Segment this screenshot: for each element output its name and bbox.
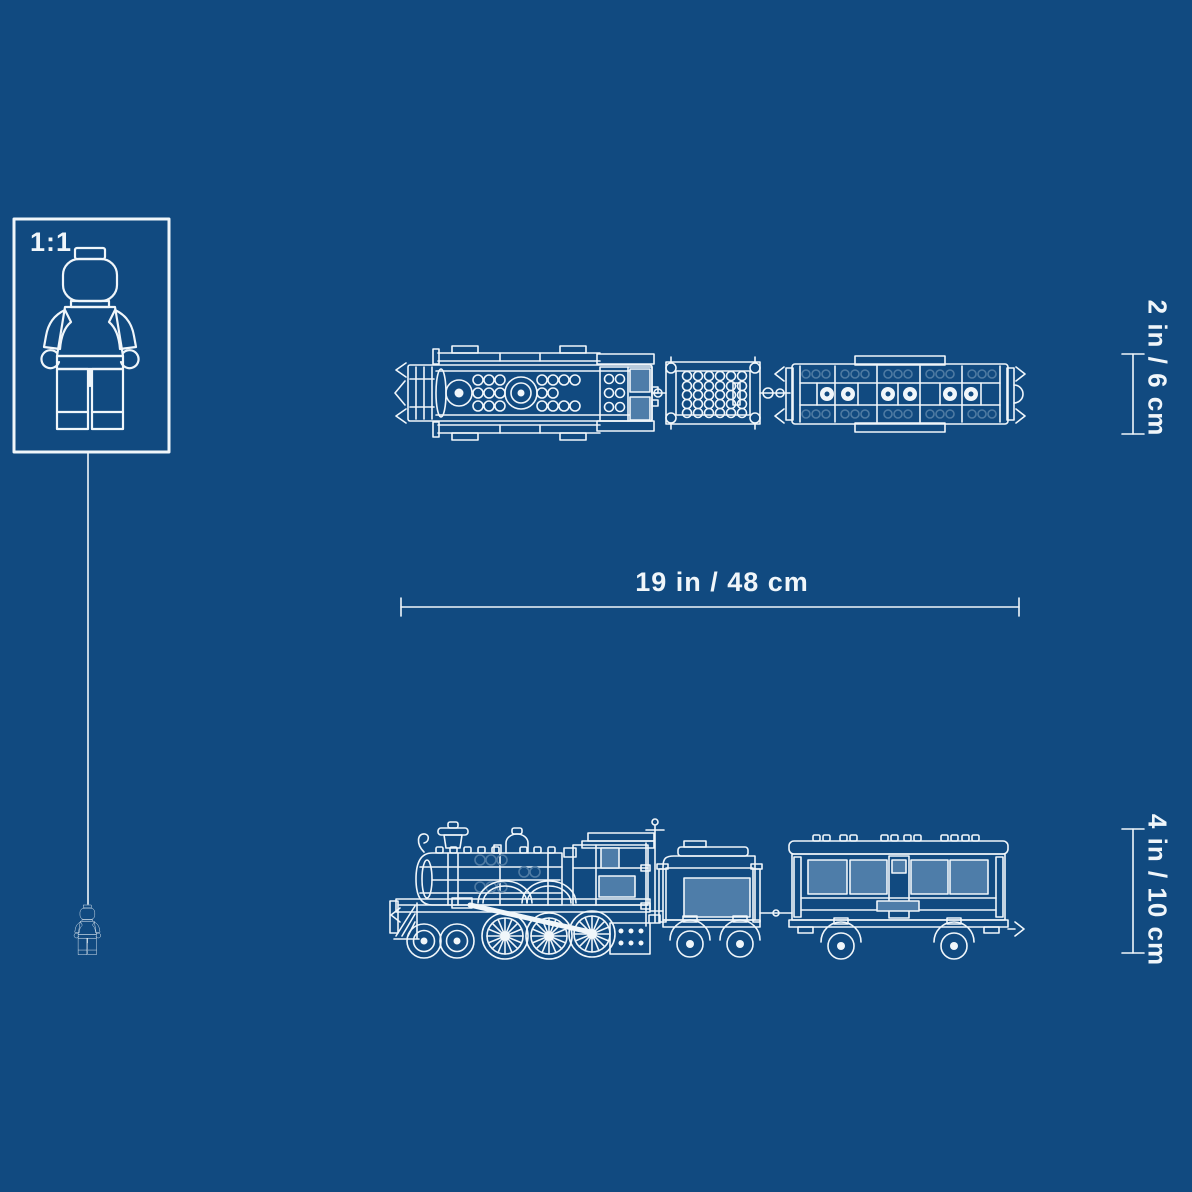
length-dimension-label: 19 in / 48 cm — [635, 567, 809, 598]
train-side-view — [390, 819, 1024, 959]
locomotive-side-view — [390, 819, 664, 959]
minifigure-icon-small — [74, 905, 101, 955]
blueprint-canvas: 1:1 19 in / 48 cm 2 in / 6 cm 4 in / 10 … — [0, 0, 1192, 1192]
passenger-car-side-view — [789, 835, 1024, 959]
side-height-dimension-label: 4 in / 10 cm — [1142, 814, 1173, 966]
train-top-view — [395, 346, 1025, 440]
top-height-dimension-label: 2 in / 6 cm — [1142, 300, 1173, 437]
passenger-car-top-view — [775, 356, 1025, 432]
tender-top-view — [652, 357, 790, 429]
scale-label: 1:1 — [30, 227, 72, 258]
dimension-length-line — [401, 598, 1019, 616]
blueprint-drawing — [0, 0, 1192, 1192]
locomotive-top-view — [395, 346, 658, 440]
minifigure-icon — [41, 248, 138, 429]
tender-side-view — [650, 841, 792, 957]
